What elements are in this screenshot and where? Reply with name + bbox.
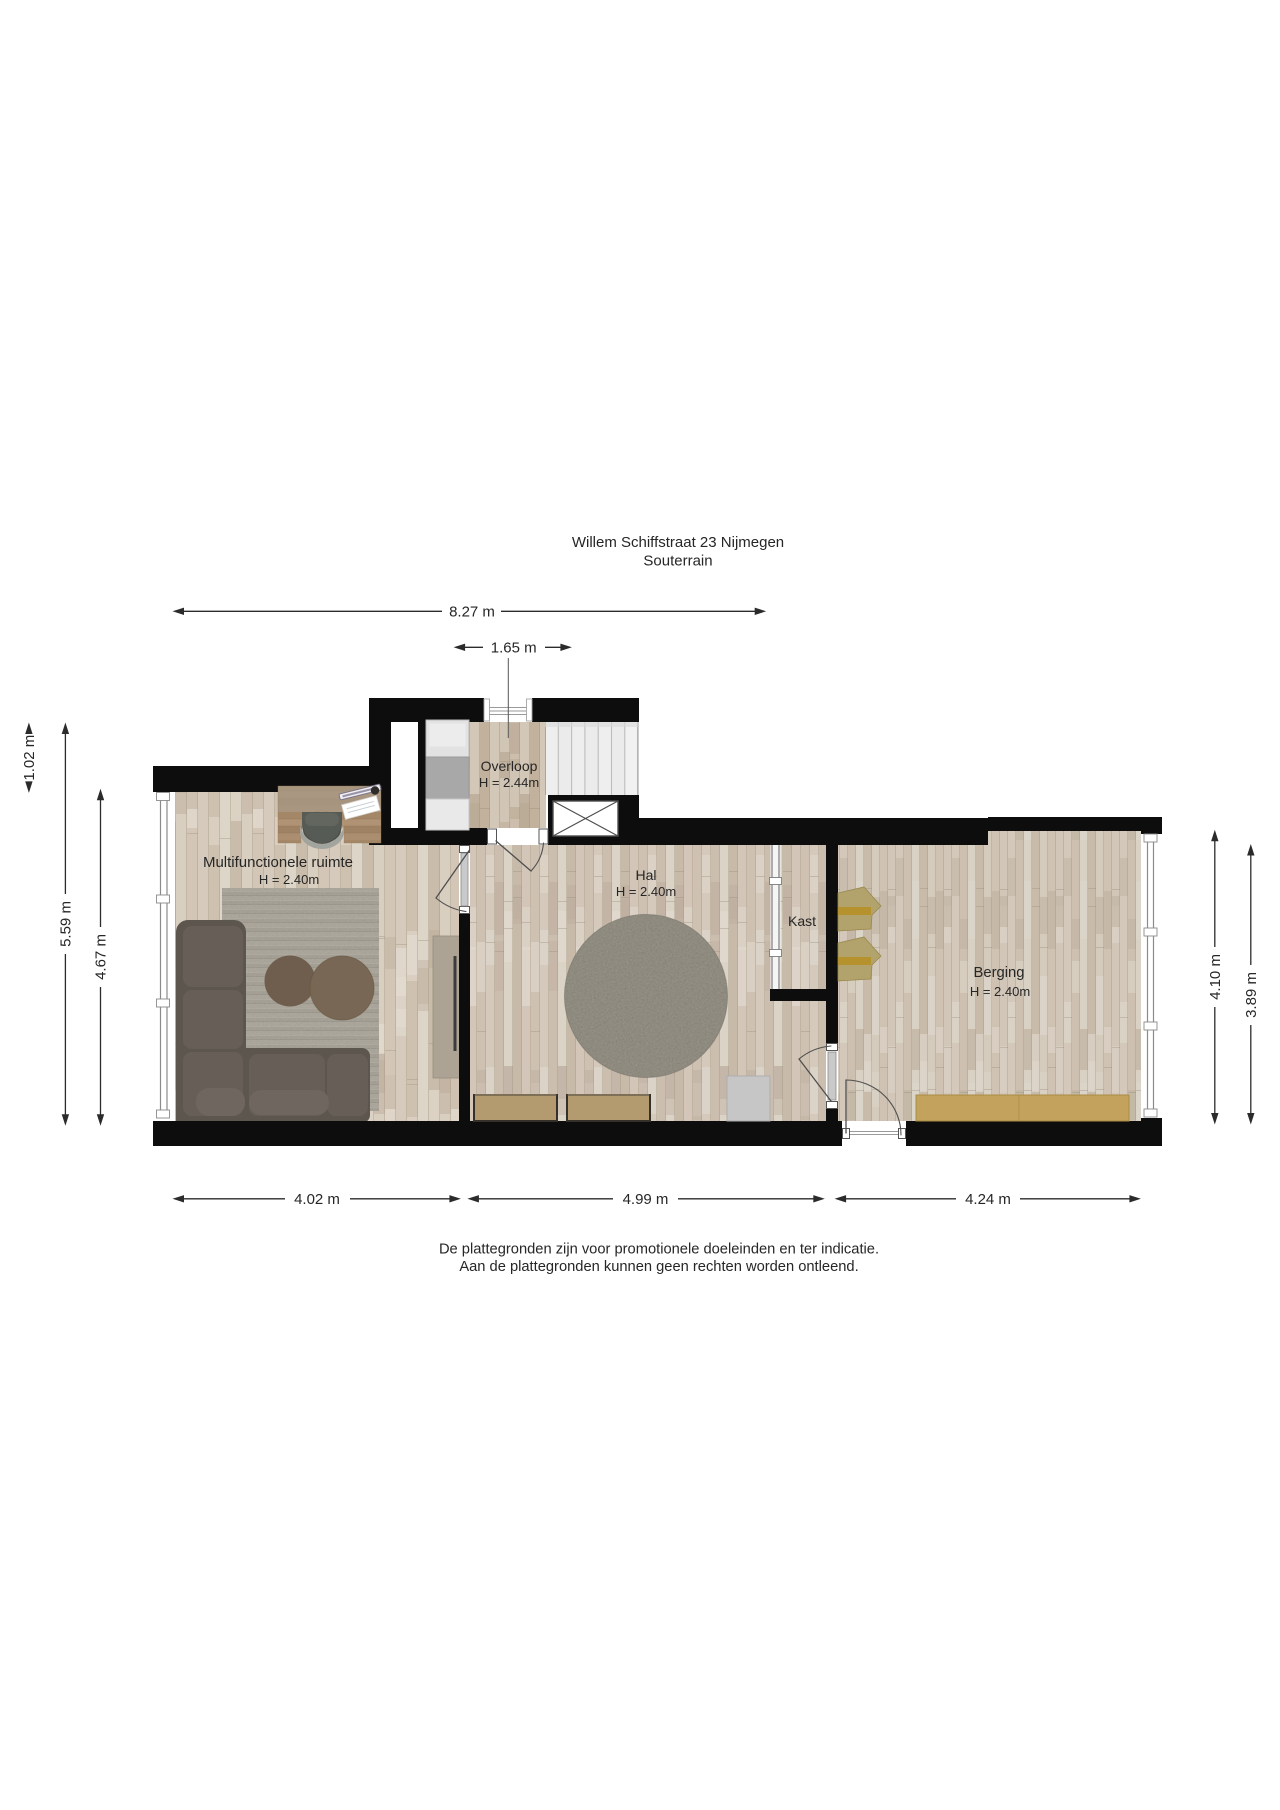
svg-text:Aan de plattegronden kunnen ge: Aan de plattegronden kunnen geen rechten… [459, 1259, 858, 1275]
svg-text:Kast: Kast [788, 913, 816, 929]
svg-text:4.67 m: 4.67 m [93, 934, 110, 980]
svg-text:4.10 m: 4.10 m [1207, 954, 1224, 1000]
svg-text:1.02 m: 1.02 m [21, 735, 38, 781]
svg-text:1.65 m: 1.65 m [491, 639, 537, 656]
svg-text:H = 2.44m: H = 2.44m [479, 775, 539, 790]
svg-text:Multifunctionele ruimte: Multifunctionele ruimte [203, 854, 353, 871]
svg-text:Willem Schiffstraat 23 Nijmege: Willem Schiffstraat 23 Nijmegen [572, 534, 784, 551]
svg-text:3.89 m: 3.89 m [1243, 972, 1260, 1018]
svg-text:4.24 m: 4.24 m [965, 1191, 1011, 1208]
svg-text:Souterrain: Souterrain [643, 553, 712, 570]
svg-text:4.99 m: 4.99 m [623, 1191, 669, 1208]
svg-text:Berging: Berging [973, 965, 1024, 981]
svg-text:Hal: Hal [635, 867, 656, 883]
svg-text:5.59 m: 5.59 m [58, 901, 75, 947]
svg-text:H = 2.40m: H = 2.40m [616, 884, 676, 899]
svg-text:Overloop: Overloop [481, 758, 538, 774]
svg-text:4.02 m: 4.02 m [294, 1191, 340, 1208]
svg-text:De plattegronden zijn voor pro: De plattegronden zijn voor promotionele … [439, 1242, 879, 1258]
svg-text:H = 2.40m: H = 2.40m [259, 872, 319, 887]
svg-text:H = 2.40m: H = 2.40m [970, 984, 1030, 999]
svg-text:8.27 m: 8.27 m [449, 603, 495, 620]
